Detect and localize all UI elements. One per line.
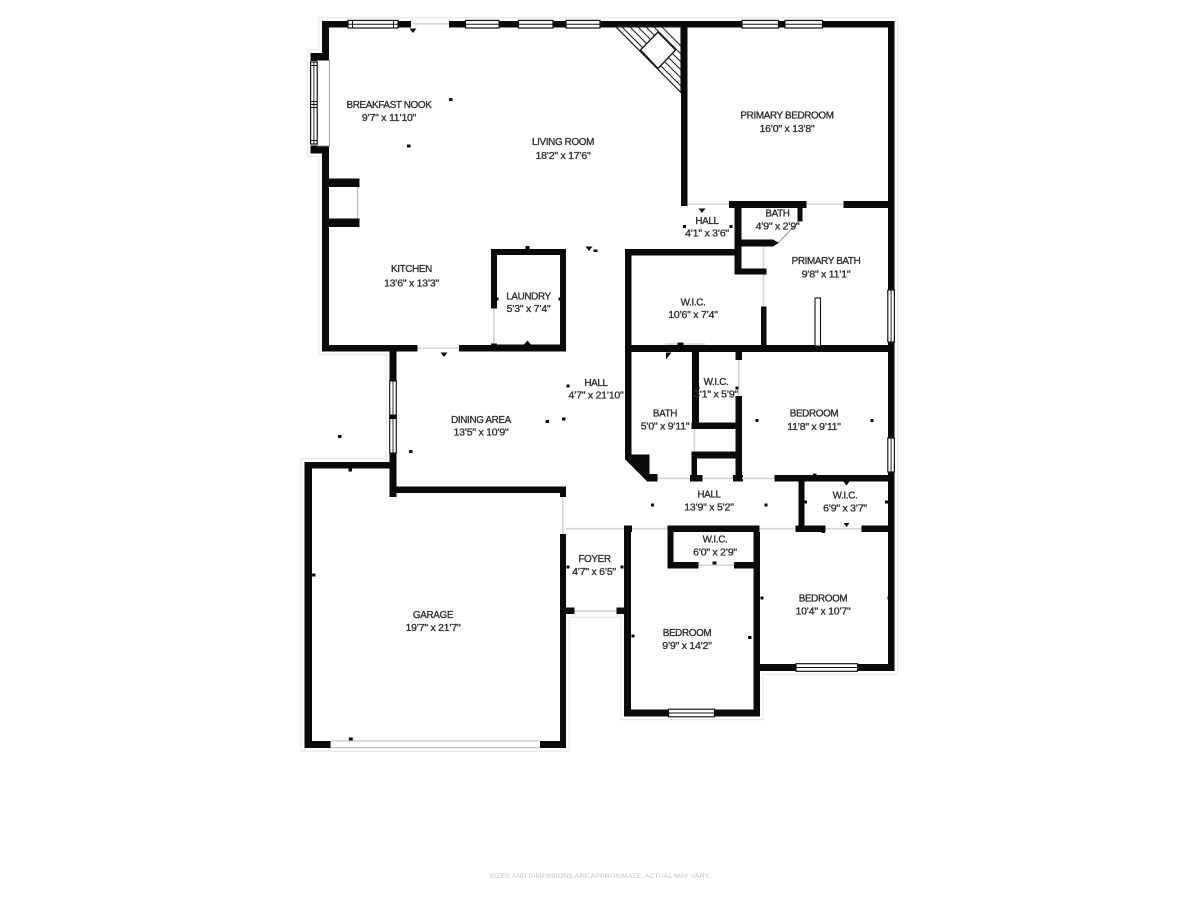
- svg-text:LIVING ROOM: LIVING ROOM: [532, 137, 594, 148]
- svg-text:9’7" x 11’10": 9’7" x 11’10": [362, 112, 417, 124]
- svg-text:11’8" x 9’11": 11’8" x 9’11": [787, 421, 841, 433]
- svg-text:HALL: HALL: [697, 490, 721, 501]
- svg-text:9’9" x 14’2": 9’9" x 14’2": [662, 640, 712, 652]
- svg-text:4’9" x 2’9": 4’9" x 2’9": [756, 221, 800, 233]
- svg-text:PRIMARY BEDROOM: PRIMARY BEDROOM: [740, 111, 833, 122]
- svg-text:DINING AREA: DINING AREA: [451, 415, 512, 426]
- svg-text:SIZES AND DIMENSIONS ARE APPRO: SIZES AND DIMENSIONS ARE APPROXIMATE, AC…: [490, 873, 711, 880]
- svg-text:KITCHEN: KITCHEN: [391, 264, 432, 275]
- svg-text:W.I.C.: W.I.C.: [833, 491, 858, 502]
- svg-text:5’0" x 9’11": 5’0" x 9’11": [641, 421, 690, 433]
- svg-text:BATH: BATH: [765, 209, 789, 220]
- svg-text:6’0" x 2’9": 6’0" x 2’9": [693, 547, 737, 559]
- svg-text:4’1" x 3’6": 4’1" x 3’6": [685, 228, 729, 240]
- svg-text:LAUNDRY: LAUNDRY: [506, 291, 551, 302]
- svg-text:BATH: BATH: [653, 409, 677, 420]
- svg-text:6’9" x 3’7": 6’9" x 3’7": [823, 503, 867, 515]
- svg-text:W.I.C.: W.I.C.: [681, 298, 706, 309]
- svg-text:W.I.C.: W.I.C.: [703, 535, 728, 546]
- svg-text:FOYER: FOYER: [578, 554, 610, 565]
- svg-text:HALL: HALL: [695, 216, 719, 227]
- svg-text:BREAKFAST NOOK: BREAKFAST NOOK: [347, 100, 433, 111]
- svg-text:9’8" x 11’1": 9’8" x 11’1": [802, 268, 851, 280]
- svg-text:BEDROOM: BEDROOM: [799, 594, 848, 605]
- svg-text:5’3" x 7’4": 5’3" x 7’4": [507, 303, 551, 315]
- svg-text:3’1" x 5’9": 3’1" x 5’9": [694, 389, 738, 401]
- svg-text:19’7" x 21’7": 19’7" x 21’7": [406, 622, 462, 634]
- svg-text:BEDROOM: BEDROOM: [663, 628, 712, 639]
- svg-text:18’2" x 17’6": 18’2" x 17’6": [536, 150, 592, 162]
- svg-text:13’5" x 10’9": 13’5" x 10’9": [454, 427, 510, 439]
- svg-text:4’7" x 6’5": 4’7" x 6’5": [572, 566, 616, 578]
- svg-text:GARAGE: GARAGE: [413, 610, 454, 621]
- svg-text:13’9" x 5’2": 13’9" x 5’2": [684, 502, 734, 514]
- svg-text:4’7" x 21’10": 4’7" x 21’10": [569, 390, 625, 402]
- svg-text:10’6" x 7’4": 10’6" x 7’4": [668, 309, 718, 321]
- svg-text:HALL: HALL: [584, 378, 608, 389]
- svg-text:10’4" x 10’7": 10’4" x 10’7": [796, 606, 852, 618]
- svg-text:W.I.C.: W.I.C.: [704, 377, 729, 388]
- svg-text:16’0" x 13’8": 16’0" x 13’8": [760, 123, 816, 135]
- svg-text:13’6" x 13’3": 13’6" x 13’3": [384, 277, 440, 289]
- svg-text:PRIMARY BATH: PRIMARY BATH: [792, 256, 861, 267]
- svg-text:BEDROOM: BEDROOM: [790, 409, 839, 420]
